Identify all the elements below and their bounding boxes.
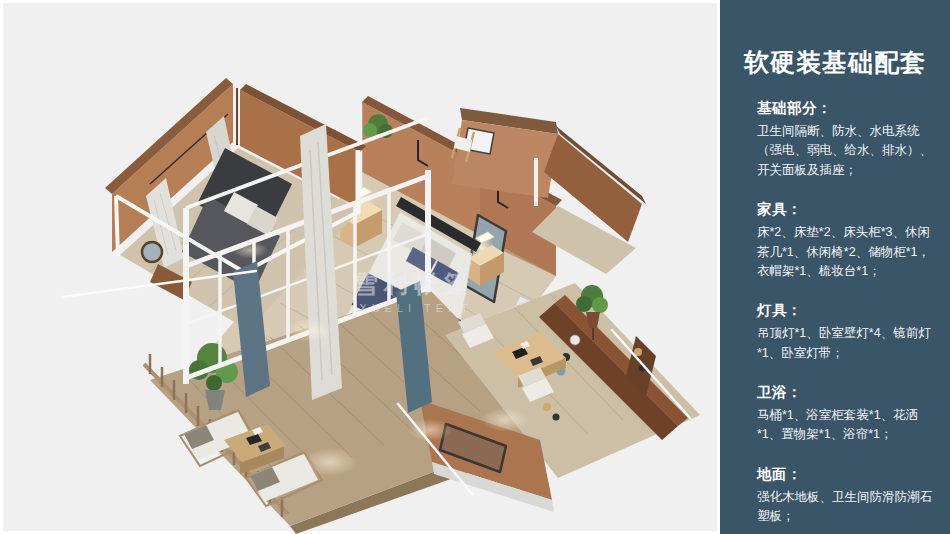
floorplan-panel: 雪利帐篷 XUELI TENT bbox=[0, 0, 720, 534]
watermark-en: XUELI TENT bbox=[359, 302, 472, 314]
round-mirror bbox=[142, 242, 162, 262]
section-heading: 地面： bbox=[757, 465, 932, 484]
section-heading: 卫浴： bbox=[757, 383, 932, 402]
section-furniture: 家具： 床*2、床垫*2、床头柜*3、休闲茶几*1、休闲椅*2、储物柜*1，衣帽… bbox=[757, 200, 932, 281]
section-body: 强化木地板、卫生间防滑防潮石塑板； bbox=[757, 488, 932, 527]
section-lighting: 灯具： 吊顶灯*1、卧室壁灯*4、镜前灯*1、卧室灯带； bbox=[757, 301, 932, 363]
section-body: 马桶*1、浴室柜套装*1、花洒*1、置物架*1、浴帘*1； bbox=[757, 406, 932, 445]
sink bbox=[570, 335, 580, 345]
section-body: 床*2、床垫*2、床头柜*3、休闲茶几*1、休闲椅*2、储物柜*1，衣帽架*1、… bbox=[757, 223, 932, 281]
section-body: 吊顶灯*1、卧室壁灯*4、镜前灯*1、卧室灯带； bbox=[757, 324, 932, 363]
floorplan-render: 雪利帐篷 XUELI TENT bbox=[0, 0, 720, 534]
watermark: 雪利帐篷 XUELI TENT bbox=[354, 270, 474, 314]
slide: 雪利帐篷 XUELI TENT 软硬装基础配套 基础部分： 卫生间隔断、防水、水… bbox=[0, 0, 950, 534]
spec-sidebar: 软硬装基础配套 基础部分： 卫生间隔断、防水、水电系统（强电、弱电、给水、排水）… bbox=[720, 0, 950, 534]
section-flooring: 地面： 强化木地板、卫生间防滑防潮石塑板； bbox=[757, 465, 932, 527]
sidebar-title: 软硬装基础配套 bbox=[738, 46, 932, 79]
section-body: 卫生间隔断、防水、水电系统（强电、弱电、给水、排水）、开关面板及插座； bbox=[757, 122, 932, 180]
section-bathroom: 卫浴： 马桶*1、浴室柜套装*1、花洒*1、置物架*1、浴帘*1； bbox=[757, 383, 932, 445]
section-heading: 家具： bbox=[757, 200, 932, 219]
watermark-cn: 雪利帐篷 bbox=[354, 270, 474, 297]
section-heading: 基础部分： bbox=[757, 99, 932, 118]
section-basics: 基础部分： 卫生间隔断、防水、水电系统（强电、弱电、给水、排水）、开关面板及插座… bbox=[757, 99, 932, 180]
floorplan-canvas: 雪利帐篷 XUELI TENT bbox=[3, 3, 717, 531]
section-heading: 灯具： bbox=[757, 301, 932, 320]
